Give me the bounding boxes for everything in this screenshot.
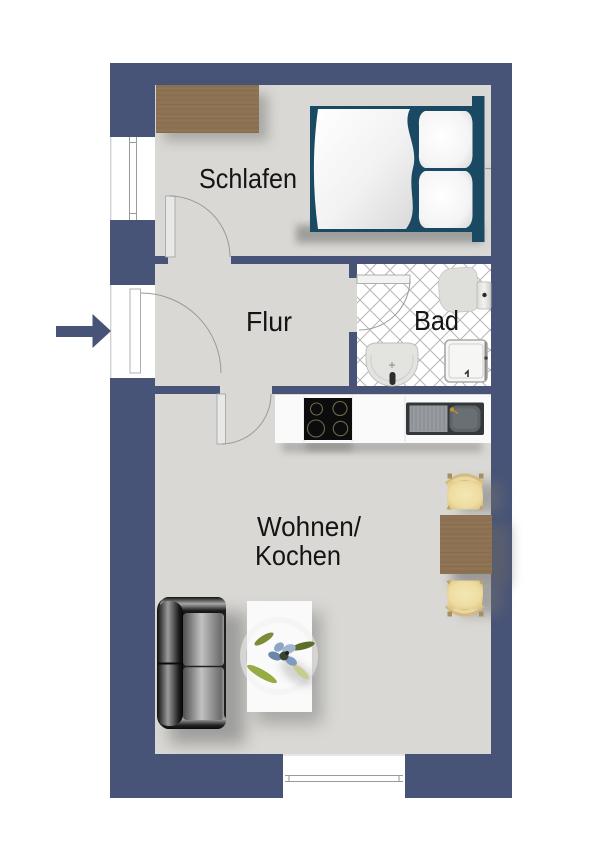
svg-text:Flur: Flur <box>246 306 292 337</box>
svg-text:Bad: Bad <box>414 305 459 336</box>
svg-text:Wohnen/: Wohnen/ <box>257 511 361 542</box>
svg-text:Schlafen: Schlafen <box>199 163 297 194</box>
svg-text:Kochen: Kochen <box>255 540 341 571</box>
